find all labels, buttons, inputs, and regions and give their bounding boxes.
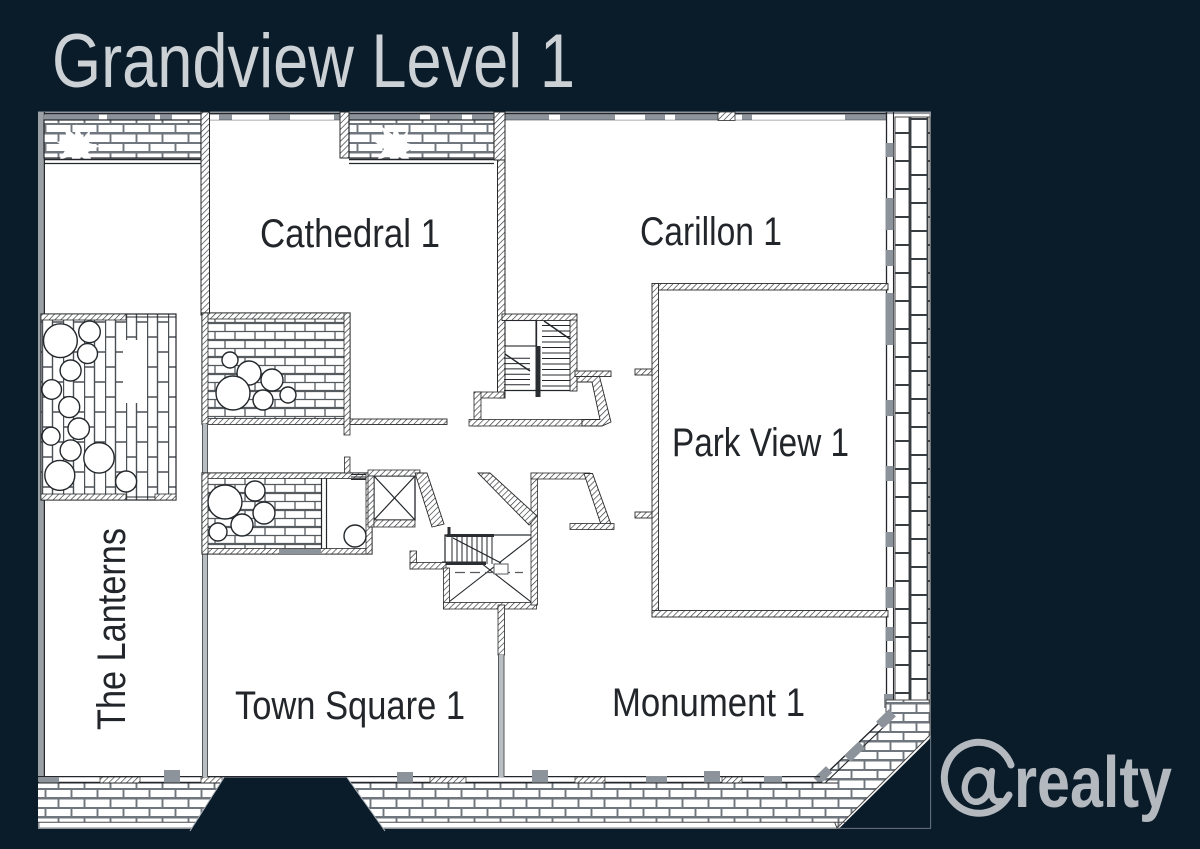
svg-text:The Lanterns: The Lanterns [90, 528, 134, 730]
svg-text:Town Square 1: Town Square 1 [235, 684, 465, 728]
svg-text:Carillon 1: Carillon 1 [640, 210, 782, 254]
svg-text:Cathedral 1: Cathedral 1 [260, 212, 440, 256]
svg-text:realty: realty [1014, 743, 1172, 823]
svg-text:Grandview Level 1: Grandview Level 1 [52, 19, 575, 104]
svg-text:Monument 1: Monument 1 [612, 681, 805, 725]
svg-text:Park View 1: Park View 1 [672, 421, 849, 465]
